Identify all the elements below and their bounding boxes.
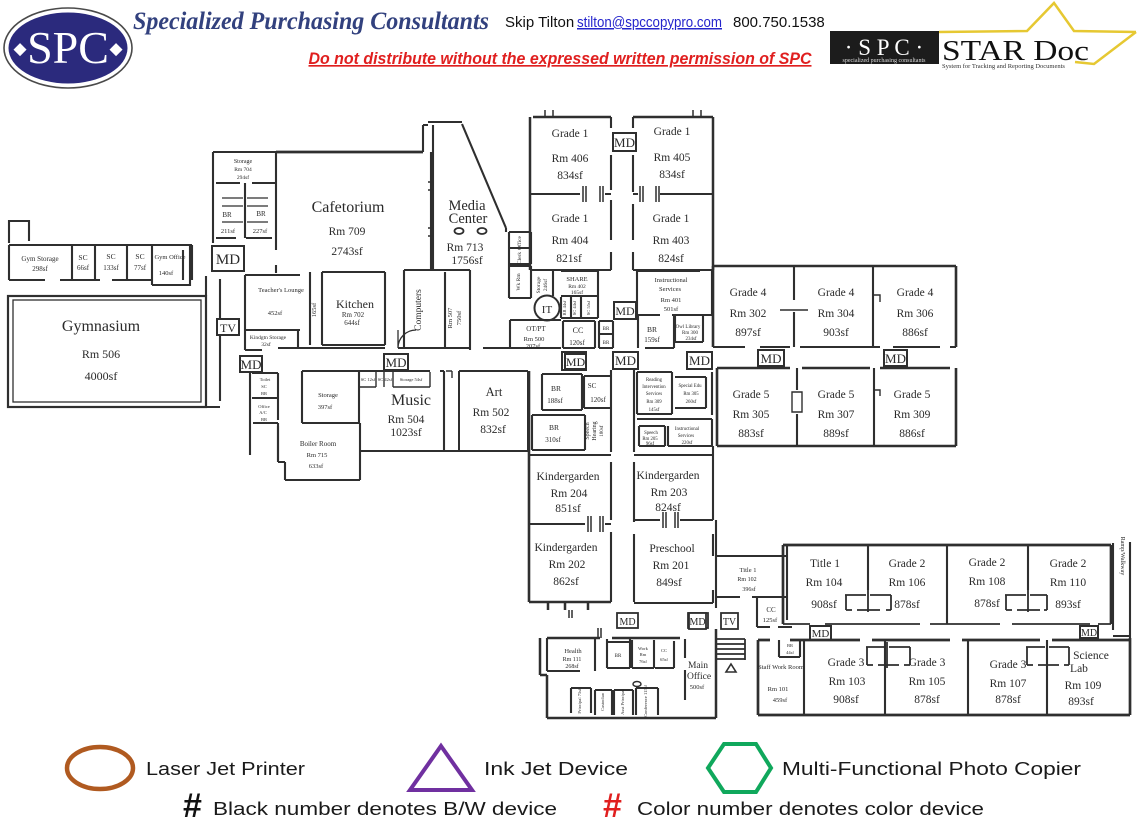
svg-text:SC: SC [78,253,87,262]
svg-text:Toilet: Toilet [260,377,271,382]
svg-text:CC: CC [766,606,776,614]
svg-text:246sf: 246sf [542,279,549,291]
svg-text:Office: Office [516,235,523,250]
svg-text:BR: BR [603,327,610,332]
svg-text:Laser Jet Printer: Laser Jet Printer [146,759,305,779]
svg-text:Rm 507: Rm 507 [447,307,454,329]
svg-text:Clerk: Clerk [517,252,523,264]
svg-text:stilton@spccopypro.com: stilton@spccopypro.com [577,14,722,31]
svg-text:Rm 401: Rm 401 [661,297,682,304]
svg-text:120sf: 120sf [590,396,606,404]
svg-text:644sf: 644sf [344,319,360,327]
svg-text:Rm 302: Rm 302 [730,308,767,320]
svg-text:165sf: 165sf [571,289,583,296]
svg-text:MD: MD [761,351,782,366]
svg-text:Owl Library: Owl Library [676,325,701,330]
svg-text:BR 44sf: BR 44sf [562,300,567,315]
svg-text:Services: Services [646,392,662,397]
svg-text:Grade 1: Grade 1 [654,126,691,138]
svg-text:Lab: Lab [1070,663,1088,675]
svg-text:Ramp/Walkway: Ramp/Walkway [1119,537,1125,576]
svg-text:Gym Storage: Gym Storage [21,255,58,263]
svg-text:459sf: 459sf [773,697,788,704]
svg-text:Rm 105: Rm 105 [909,676,946,688]
svg-text:Conference 115sf: Conference 115sf [643,685,648,717]
svg-text:165sf: 165sf [311,302,318,317]
svg-text:SC: SC [106,252,115,261]
svg-text:Rm 713: Rm 713 [447,242,484,254]
svg-text:MD: MD [241,357,262,372]
svg-text:Rm 500: Rm 500 [524,336,545,343]
svg-text:BR: BR [647,325,657,334]
svg-text:Multi-Functional Photo Copier: Multi-Functional Photo Copier [782,759,1081,779]
svg-text:633sf: 633sf [309,463,324,470]
svg-text:Do not distribute without the: Do not distribute without the expressed … [309,50,813,68]
svg-text:886sf: 886sf [899,428,925,440]
svg-text:specialized purchasing consult: specialized purchasing consultants [843,58,927,64]
svg-text:Grade 1: Grade 1 [552,128,589,140]
svg-text:268sf: 268sf [565,663,578,670]
svg-text:260sf: 260sf [686,400,697,405]
svg-text:Gymnasium: Gymnasium [62,318,141,335]
svg-text:MD: MD [689,617,705,628]
svg-text:CC: CC [661,648,667,653]
svg-text:883sf: 883sf [738,428,764,440]
svg-text:BR: BR [261,391,267,396]
svg-text:849sf: 849sf [656,577,682,589]
svg-text:76sf: 76sf [639,659,647,664]
svg-text:Storage: Storage [536,276,542,293]
svg-text:Science: Science [1073,650,1109,662]
svg-text:Grade 3: Grade 3 [990,659,1027,671]
svg-text:Skip Tilton: Skip Tilton [505,14,574,31]
svg-text:32sf: 32sf [261,341,271,348]
svg-text:Kindergarden: Kindergarden [534,542,597,554]
svg-text:Office: Office [258,404,269,409]
svg-text:Grade 4: Grade 4 [897,287,934,299]
svg-text:886sf: 886sf [902,327,928,339]
svg-text:832sf: 832sf [480,424,506,436]
svg-text:MD: MD [1081,628,1097,639]
svg-text:Storage 54sf: Storage 54sf [400,377,423,382]
svg-text:Speech: Speech [644,431,658,436]
svg-text:500sf: 500sf [690,684,705,691]
svg-text:Rm 111: Rm 111 [563,657,582,663]
svg-text:Rm 406: Rm 406 [552,153,589,165]
svg-text:Intervention: Intervention [642,385,666,390]
svg-text:897sf: 897sf [735,327,761,339]
svg-text:Rm 203: Rm 203 [651,487,688,499]
svg-text:Services: Services [659,286,681,293]
svg-text:851sf: 851sf [555,503,581,515]
svg-text:Specialized Purchasing Consult: Specialized Purchasing Consultants [133,8,489,35]
svg-text:1023sf: 1023sf [390,427,421,439]
svg-text:310sf: 310sf [545,436,561,444]
svg-text:BR: BR [261,417,267,422]
svg-text:#: # [183,787,202,825]
svg-text:Kindergarden: Kindergarden [636,470,699,482]
svg-text:207sf: 207sf [526,343,541,350]
svg-text:Rm 403: Rm 403 [653,235,690,247]
svg-text:501sf: 501sf [664,306,679,313]
svg-text:96sf: 96sf [646,442,655,447]
svg-text:Grade 1: Grade 1 [653,213,690,225]
svg-text:66sf: 66sf [77,264,90,272]
svg-text:System for Tracking and Report: System for Tracking and Reporting Docume… [942,63,1065,70]
svg-text:MD: MD [566,355,586,369]
svg-text:Speech: Speech [585,422,591,439]
svg-text:889sf: 889sf [823,428,849,440]
svg-text:SC: SC [588,382,597,390]
svg-text:Grade 4: Grade 4 [818,287,855,299]
svg-text:Staff Work Room: Staff Work Room [758,664,804,671]
svg-text:452sf: 452sf [268,310,283,317]
svg-text:145sf: 145sf [649,408,660,413]
svg-text:Rm 104: Rm 104 [806,577,843,589]
svg-text:Title 1: Title 1 [810,558,840,570]
svg-text:298sf: 298sf [32,265,48,273]
svg-text:Preschool: Preschool [649,543,694,555]
svg-text:77sf: 77sf [134,264,147,272]
svg-text:Center: Center [449,211,488,227]
svg-text:SC 44sf: SC 44sf [572,300,577,315]
svg-text:Kitchen: Kitchen [336,297,374,311]
svg-text:140sf: 140sf [159,270,174,277]
svg-text:SC: SC [135,252,144,261]
svg-text:◆: ◆ [109,39,123,58]
svg-text:MD: MD [615,304,635,318]
svg-text:· S P C ·: · S P C · [845,35,923,60]
svg-text:Rm 502: Rm 502 [473,407,510,419]
svg-text:Asst Principal: Asst Principal [620,689,625,715]
svg-text:Wk Rm: Wk Rm [516,273,522,291]
svg-text:44sf: 44sf [786,650,794,655]
svg-text:903sf: 903sf [823,327,849,339]
svg-text:BR: BR [787,643,793,648]
svg-text:Rm 201: Rm 201 [653,560,690,572]
svg-text:834sf: 834sf [557,170,583,182]
svg-text:Rm: Rm [640,652,647,657]
svg-text:Reading: Reading [646,378,663,383]
svg-text:750sf: 750sf [456,310,463,325]
svg-text:Gym Office: Gym Office [154,254,185,261]
svg-text:125sf: 125sf [763,617,778,624]
svg-text:Rm 309: Rm 309 [894,409,931,421]
svg-text:Boiler Room: Boiler Room [300,440,337,448]
svg-text:834sf: 834sf [659,169,685,181]
svg-text:Services: Services [678,434,694,439]
svg-text:878sf: 878sf [894,599,920,611]
svg-text:Storage: Storage [234,159,253,165]
svg-text:A/C: A/C [259,410,267,415]
svg-text:Rm 506: Rm 506 [82,347,120,361]
svg-text:862sf: 862sf [553,576,579,588]
svg-text:824sf: 824sf [655,502,681,514]
svg-text:SHARE: SHARE [566,276,587,283]
svg-text:Rm 304: Rm 304 [818,308,855,320]
svg-text:Rm 309: Rm 309 [646,400,662,405]
svg-text:65sf: 65sf [660,657,668,662]
svg-text:Rm 715: Rm 715 [307,452,328,459]
svg-text:Rm 110: Rm 110 [1050,577,1087,589]
svg-text:Cafetorium: Cafetorium [312,199,385,216]
svg-text:Rm 106: Rm 106 [889,577,926,589]
svg-text:MD: MD [614,135,635,150]
svg-text:Storage: Storage [318,392,338,399]
svg-text:MD: MD [386,355,407,370]
svg-text:SC: SC [261,384,267,389]
svg-text:Grade 5: Grade 5 [733,389,770,401]
svg-text:Rm 306: Rm 306 [897,308,934,320]
svg-text:Color number denotes color dev: Color number denotes color device [637,799,984,819]
svg-text:Ink Jet Device: Ink Jet Device [484,759,628,779]
svg-text:Instructional: Instructional [675,427,700,432]
svg-text:Rm 504: Rm 504 [388,414,425,426]
svg-text:Music: Music [391,392,431,409]
svg-text:Rm 202: Rm 202 [549,559,586,571]
svg-text:133sf: 133sf [103,264,119,272]
svg-text:BR: BR [222,211,232,219]
svg-text:878sf: 878sf [974,598,1000,610]
svg-text:Grade 2: Grade 2 [889,558,926,570]
svg-text:397sf: 397sf [318,404,333,411]
svg-text:BR: BR [615,654,622,659]
svg-text:BR: BR [256,210,266,218]
svg-text:Art: Art [486,385,503,399]
svg-text:SC 42sf: SC 42sf [378,377,393,382]
svg-text:MD: MD [216,252,240,268]
svg-text:Grade 1: Grade 1 [552,213,589,225]
svg-text:Custodian: Custodian [600,692,605,711]
svg-text:800.750.1538: 800.750.1538 [733,14,825,31]
svg-text:MD: MD [619,617,635,628]
svg-text:Rm 103: Rm 103 [829,676,866,688]
svg-text:Hearing: Hearing [592,421,598,440]
svg-text:Rm 709: Rm 709 [329,226,366,238]
svg-text:Rm 404: Rm 404 [552,235,589,247]
svg-text:Grade 3: Grade 3 [909,657,946,669]
svg-text:878sf: 878sf [914,694,940,706]
svg-text:MD: MD [812,628,830,640]
svg-text:Grade 4: Grade 4 [730,287,767,299]
svg-text:#: # [603,787,622,825]
svg-text:MD: MD [689,353,710,368]
svg-text:908sf: 908sf [833,694,859,706]
svg-text:2743sf: 2743sf [331,246,362,258]
svg-text:Grade 3: Grade 3 [828,657,865,669]
svg-text:Rm 101: Rm 101 [768,686,789,693]
svg-text:Grade 2: Grade 2 [969,557,1006,569]
svg-text:159sf: 159sf [644,336,660,344]
svg-text:4000sf: 4000sf [85,369,118,383]
svg-text:Computers: Computers [414,289,424,331]
svg-text:IT: IT [542,304,553,316]
svg-text:Grade 5: Grade 5 [894,389,931,401]
svg-text:Rm 108: Rm 108 [969,576,1006,588]
svg-text:CC: CC [573,326,584,335]
svg-text:Main: Main [688,661,708,671]
svg-text:Rm 102: Rm 102 [737,577,756,583]
svg-text:893sf: 893sf [1055,599,1081,611]
svg-text:BR: BR [551,384,561,393]
svg-text:BR: BR [549,423,559,432]
svg-text:Rm 702: Rm 702 [342,311,365,319]
svg-text:Rm 305: Rm 305 [683,392,699,397]
svg-text:908sf: 908sf [811,599,837,611]
svg-text:Rm 704: Rm 704 [234,167,252,173]
svg-text:Rm 204: Rm 204 [551,488,588,500]
svg-text:396sf: 396sf [742,586,755,593]
svg-text:MD: MD [615,353,636,368]
svg-text:Special Edu: Special Edu [678,384,702,389]
svg-text:Kindgtn Storage: Kindgtn Storage [250,335,287,341]
svg-text:Rm 107: Rm 107 [990,678,1027,690]
svg-text:Teacher's Lounge: Teacher's Lounge [258,287,304,294]
svg-text:Instructional: Instructional [655,277,688,284]
svg-text:BR: BR [603,341,610,346]
svg-text:Rm 109: Rm 109 [1065,680,1102,692]
svg-text:234sf: 234sf [685,337,696,342]
svg-text:TV: TV [723,617,737,628]
svg-text:Grade 2: Grade 2 [1050,558,1087,570]
svg-text:188sf: 188sf [547,397,563,405]
svg-text:SC 55sf: SC 55sf [586,300,591,315]
svg-text:Principal 75sf: Principal 75sf [577,688,582,714]
svg-text:Title 1: Title 1 [740,567,757,574]
svg-text:Health: Health [564,648,582,655]
svg-text:TV: TV [220,321,236,335]
svg-text:◆: ◆ [13,39,27,58]
svg-text:1756sf: 1756sf [451,255,482,267]
svg-text:294sf: 294sf [237,174,249,181]
svg-text:Rm 300: Rm 300 [682,331,698,336]
svg-text:821sf: 821sf [556,253,582,265]
svg-text:227sf: 227sf [253,228,268,235]
svg-text:211sf: 211sf [221,228,236,235]
svg-text:893sf: 893sf [1068,696,1094,708]
svg-text:MD: MD [885,351,906,366]
svg-text:Work: Work [638,646,649,651]
svg-text:OT/PT: OT/PT [526,325,546,333]
svg-text:180sf: 180sf [600,425,605,436]
svg-text:SC 12sf: SC 12sf [361,377,376,382]
svg-text:120sf: 120sf [569,339,585,347]
svg-text:Kindergarden: Kindergarden [536,471,599,483]
svg-text:Rm 307: Rm 307 [818,409,855,421]
svg-text:Grade 5: Grade 5 [818,389,855,401]
svg-text:878sf: 878sf [995,694,1021,706]
svg-text:824sf: 824sf [658,253,684,265]
svg-text:SPC: SPC [27,22,109,73]
svg-text:220sf: 220sf [682,441,693,446]
svg-text:Office: Office [687,671,711,682]
svg-text:Black number denotes B/W devic: Black number denotes B/W device [213,799,557,819]
svg-text:Rm 405: Rm 405 [654,152,691,164]
svg-text:Rm 305: Rm 305 [733,409,770,421]
